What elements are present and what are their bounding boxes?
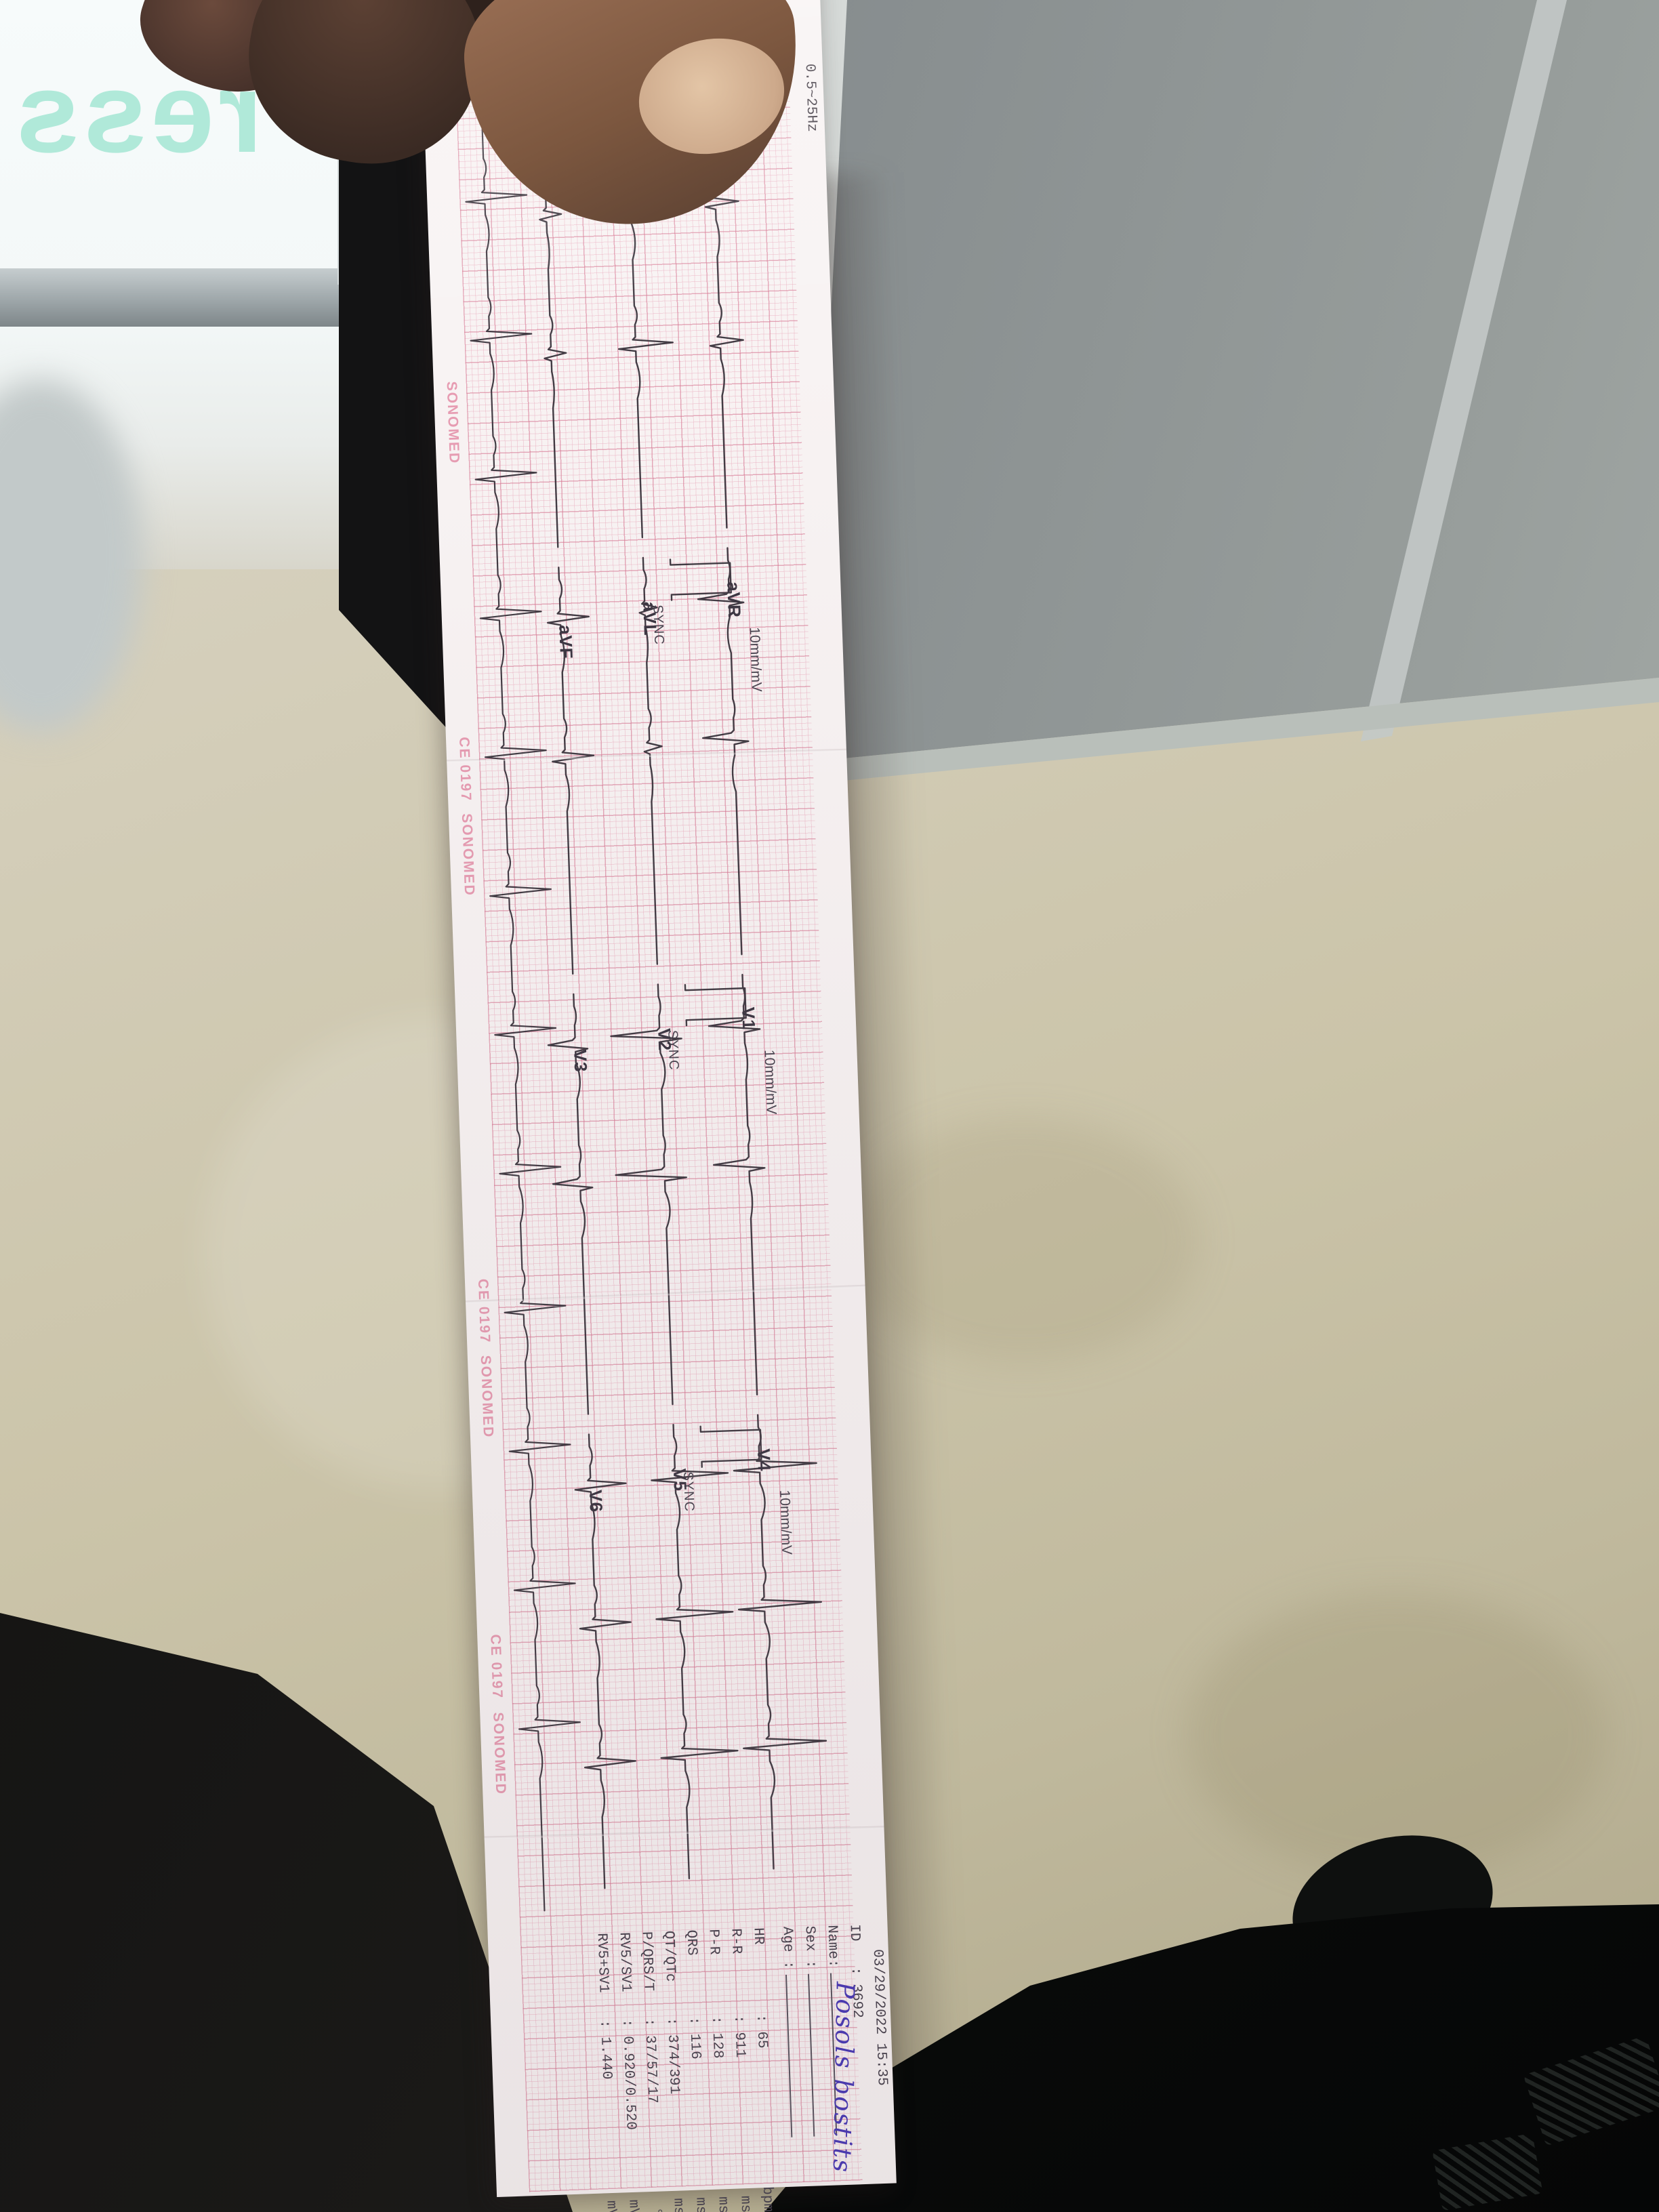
header-filter-text: 0.5~25Hz (802, 64, 820, 133)
trace-III (533, 25, 573, 548)
edge-brand-text: SONOMED (458, 813, 477, 897)
label-lead-V3: V3 (569, 1049, 591, 1073)
label-lead-I: I (704, 53, 725, 59)
edge-ce-mark: CE 0197 (455, 737, 474, 802)
name-label: Name: (823, 1925, 840, 1968)
trace-V2 (609, 983, 695, 1406)
trace-V6 (573, 1433, 640, 1889)
meas-unit: ms (710, 2175, 734, 2212)
edge-ce-mark: CE 0197 (474, 1278, 493, 1344)
meas-unit: bpm (755, 2174, 779, 2212)
age-blank-line (785, 1974, 802, 2137)
meas-label: HR (747, 1927, 772, 2015)
handwritten-patient-name: Posols bostits (831, 1982, 857, 2174)
meas-label: P/QRS/T (635, 1931, 660, 2018)
meas-unit: ms (665, 2177, 689, 2212)
label-lead-aVL: aVL (638, 601, 661, 636)
trace-V4 (732, 1413, 830, 1870)
meas-label: QT/QTc (657, 1930, 682, 2018)
label-rhythm-lead: II (470, 41, 492, 53)
meas-unit: ms (733, 2175, 756, 2212)
label-lead-III: III (537, 106, 558, 124)
label-gain: 10mm/mV (776, 1490, 794, 1555)
label-gain: 10mm/mV (760, 1050, 779, 1115)
photo-scene: ress (0, 0, 1659, 2212)
edge-brand-text: SONOMED (489, 1712, 508, 1795)
meas-label: R-R (724, 1928, 750, 2015)
edge-ce-mark: CE 0197 (487, 1634, 505, 1700)
label-lead-aVR: aVR (722, 581, 745, 619)
edge-brand-text: SONOMED (477, 1355, 496, 1438)
trace-II (607, 15, 680, 538)
sex-label: Sex : (801, 1925, 818, 1969)
cal-pulse (670, 558, 731, 600)
glass-decal-text: ress (12, 47, 263, 178)
floor-stain (1186, 1593, 1606, 1877)
edge-brand-text: SONOMED (443, 381, 462, 464)
age-label: Age : (779, 1926, 796, 1969)
ecg-paper-strip: II I 10mm/mV II III SYNC aVR 10mm/mV aVL… (419, 0, 897, 2197)
label-gain: 10mm/mV (727, 94, 745, 159)
meas-label: RV5+SV1 (590, 1933, 615, 2020)
meas-unit: mV (598, 2179, 622, 2212)
meas-unit: mV (621, 2178, 644, 2212)
patient-info-block: 03/29/2022 15:35 ID : 3692 Name: Sex : A… (487, 1880, 897, 2197)
label-gain: 10mm/mV (746, 627, 764, 692)
label-lead-V6: V6 (585, 1490, 607, 1513)
label-lead-II: II (620, 80, 642, 92)
label-lead-V1: V1 (737, 1006, 759, 1030)
trace-rhythm (459, 6, 586, 1911)
patient-info-content: 03/29/2022 15:35 ID : 3692 Name: Sex : A… (487, 1880, 897, 2197)
id-label: ID (846, 1924, 862, 1942)
sex-blank-line (808, 1973, 824, 2136)
label-lead-aVF: aVF (554, 625, 577, 660)
label-lead-V5: V5 (669, 1468, 691, 1492)
cal-pulse (685, 983, 746, 1025)
label-lead-V2: V2 (653, 1028, 675, 1052)
meas-label: RV5/SV1 (613, 1932, 638, 2020)
trace-I (699, 12, 750, 528)
trace-V1 (707, 974, 773, 1395)
label-lead-V4: V4 (753, 1448, 775, 1472)
meas-unit: ° (643, 2177, 667, 2212)
ecg-waveforms (419, 0, 897, 2197)
meas-unit: ms (688, 2176, 712, 2212)
cal-pulse (652, 28, 713, 70)
meas-label: QRS (680, 1929, 705, 2017)
meas-label: P-R (702, 1929, 727, 2016)
cal-pulse (701, 1425, 762, 1467)
